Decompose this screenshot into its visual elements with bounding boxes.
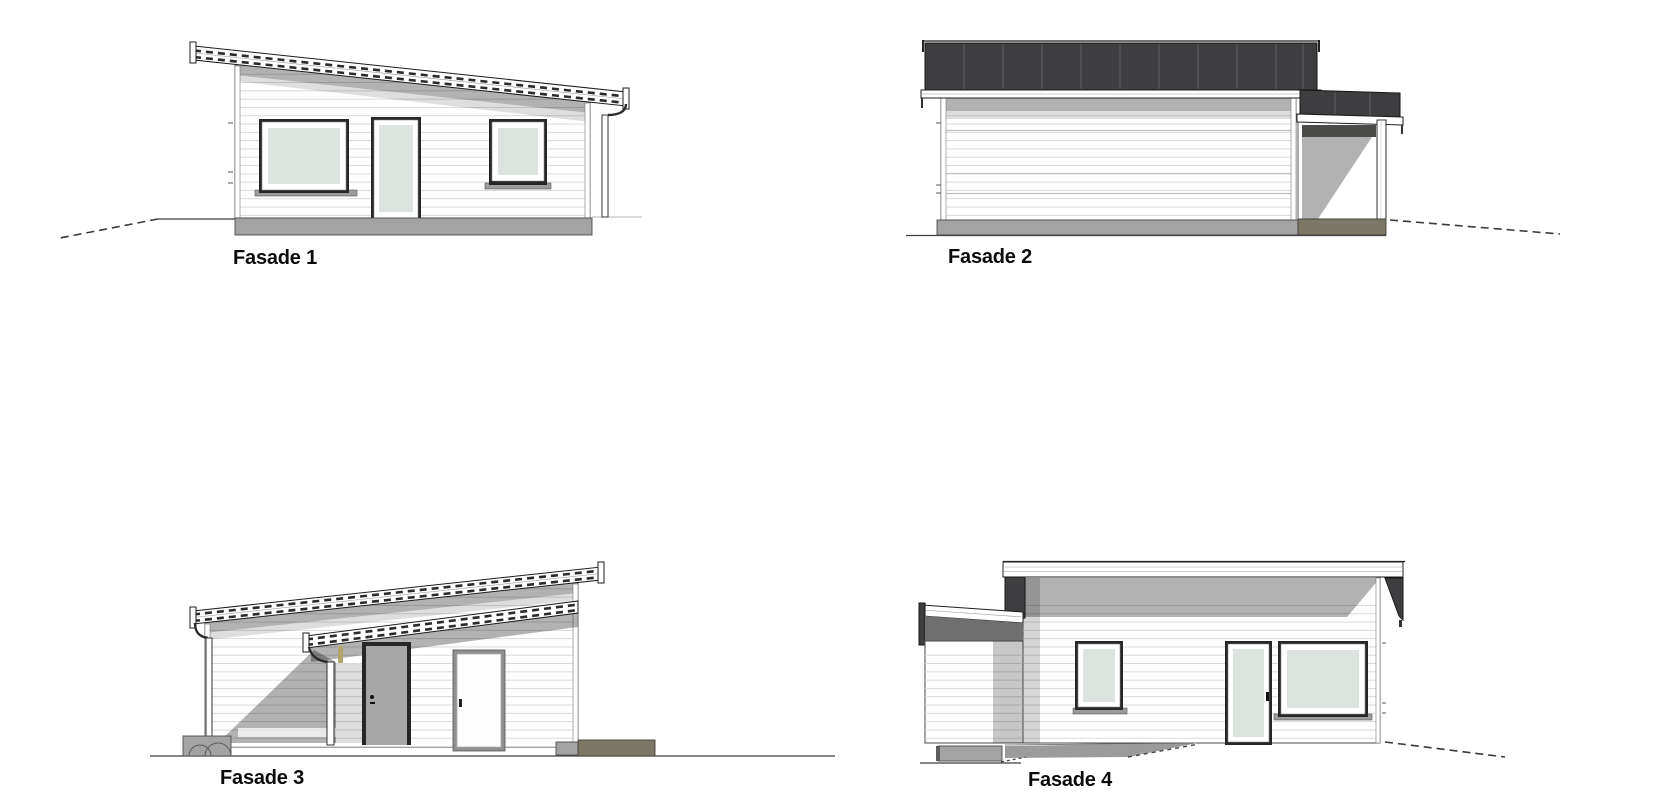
window-small <box>485 119 551 189</box>
elevation-fasade-3 <box>150 562 835 756</box>
downspout <box>195 623 212 743</box>
entrance-door <box>362 642 411 745</box>
terrace-slab <box>1001 743 1199 762</box>
label-fasade-2: Fasade 2 <box>948 247 1032 267</box>
label-fasade-4: Fasade 4 <box>1028 770 1112 790</box>
window-large <box>1274 641 1372 720</box>
side-annex <box>919 603 1023 763</box>
window-small <box>1073 641 1127 714</box>
elevation-fasade-1 <box>60 42 642 238</box>
glazed-door <box>368 117 424 224</box>
dark-roof <box>922 40 1320 90</box>
drawing-sheet: Fasade 1 Fasade 2 Fasade 3 Fasade 4 <box>0 0 1670 800</box>
elevation-fasade-2 <box>906 40 1560 236</box>
wall <box>936 97 1296 220</box>
label-fasade-1: Fasade 1 <box>233 248 317 268</box>
glazed-door <box>1225 641 1272 745</box>
carport <box>1297 90 1403 219</box>
ground-line <box>1385 742 1505 757</box>
label-fasade-3: Fasade 3 <box>220 768 304 788</box>
window-large <box>255 119 357 196</box>
foundation <box>937 219 1386 235</box>
white-door <box>453 650 505 751</box>
elevations-drawing <box>0 0 1670 800</box>
downspout <box>602 104 626 217</box>
foundation <box>235 218 592 235</box>
elevation-fasade-4 <box>919 562 1505 764</box>
